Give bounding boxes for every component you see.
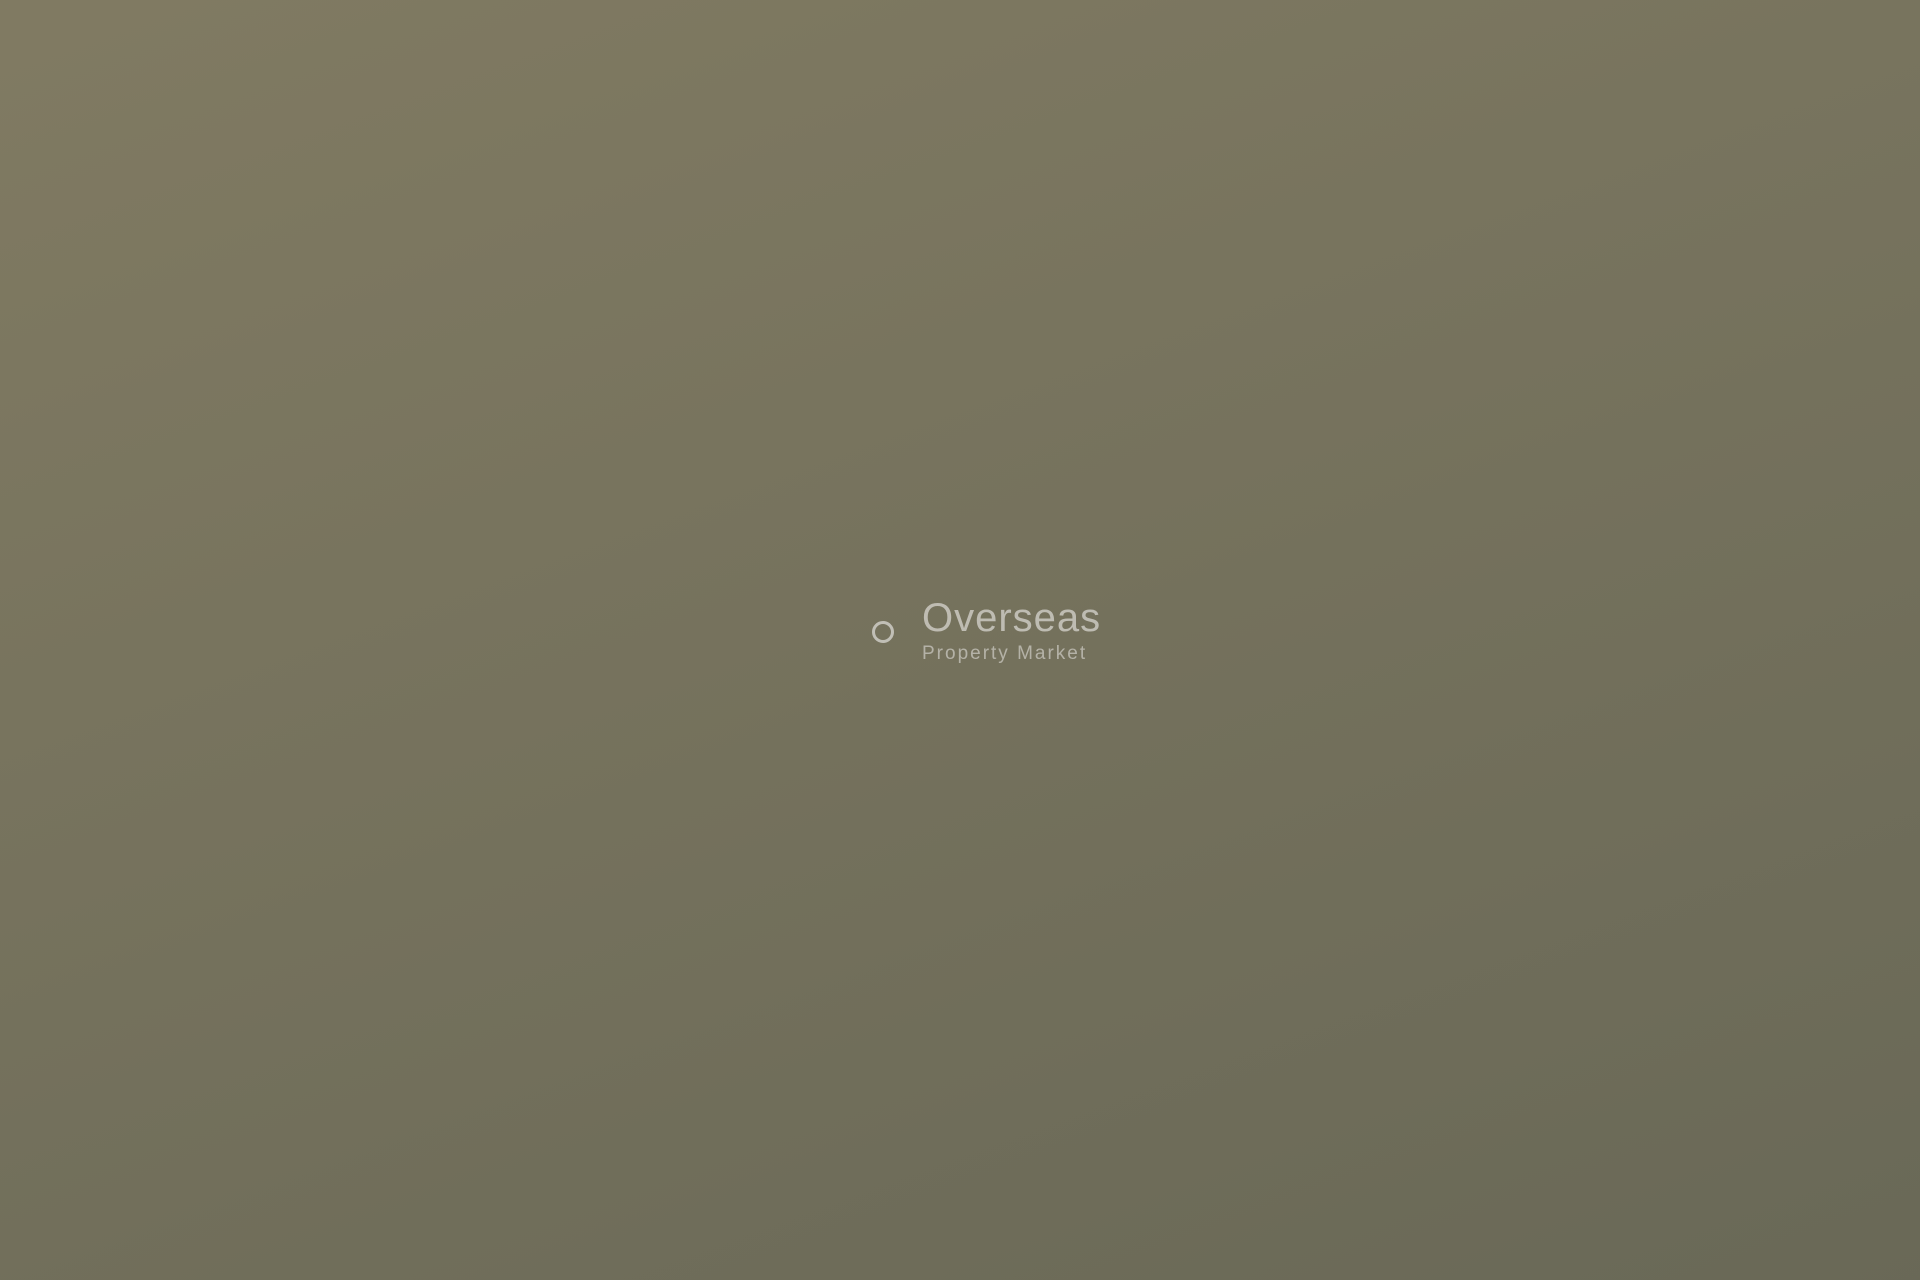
aerial-render: Overseas Property Market (0, 0, 1920, 1280)
resort-aerial-scene (0, 0, 1920, 1280)
